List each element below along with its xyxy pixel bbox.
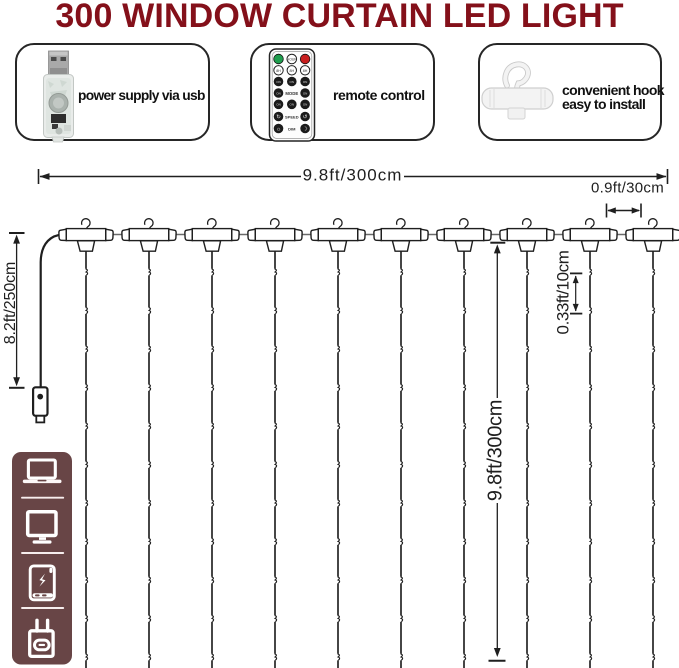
svg-text:0.9ft/30cm: 0.9ft/30cm: [591, 180, 664, 197]
svg-text:9.8ft/300cm: 9.8ft/300cm: [485, 400, 507, 501]
svg-text:8.2ft/250cm: 8.2ft/250cm: [2, 262, 19, 345]
svg-text:0.33ft/10cm: 0.33ft/10cm: [554, 250, 573, 334]
svg-text:9.8ft/300cm: 9.8ft/300cm: [303, 166, 403, 185]
